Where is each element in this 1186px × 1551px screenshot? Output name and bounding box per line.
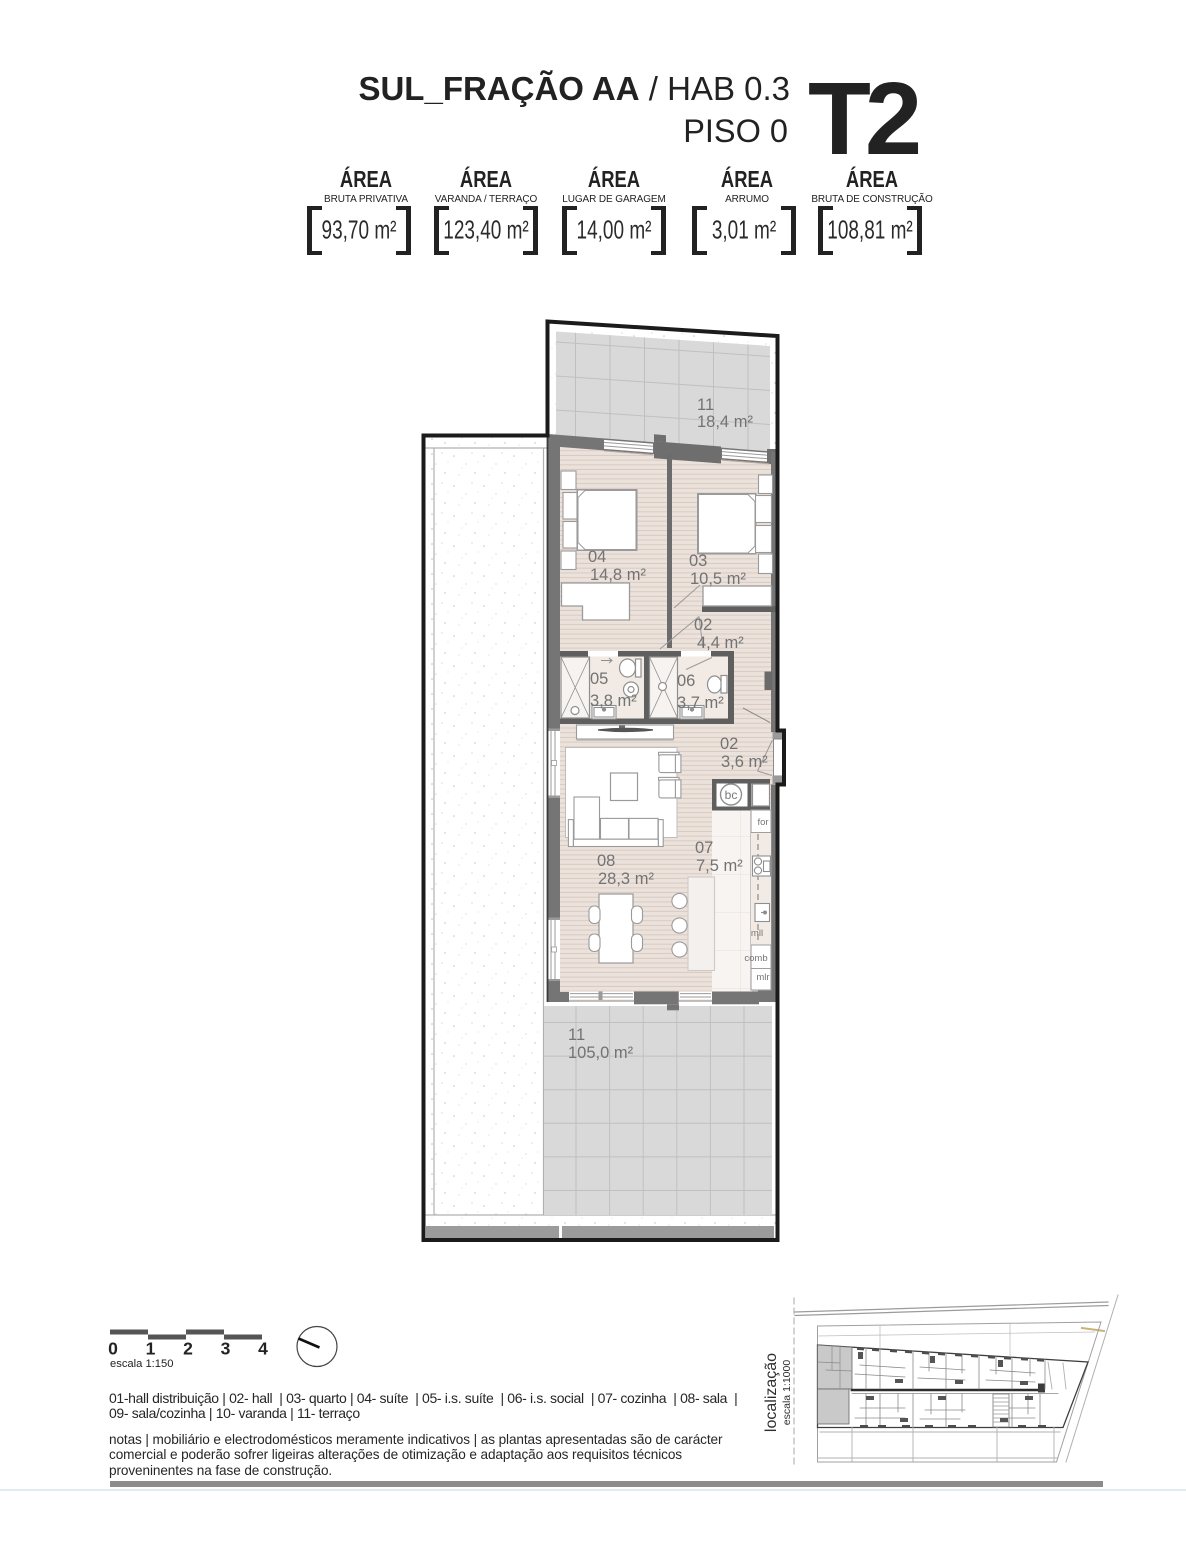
svg-text:bc: bc [725,788,738,802]
svg-text:02: 02 [694,616,712,634]
svg-text:7,5 m²: 7,5 m² [696,857,743,875]
svg-text:11: 11 [568,1026,585,1044]
svg-text:105,0 m²: 105,0 m² [568,1044,634,1062]
svg-text:0: 0 [108,1339,118,1359]
svg-text:02: 02 [720,735,738,753]
svg-text:14,8 m²: 14,8 m² [590,566,646,584]
svg-text:escala 1:150: escala 1:150 [110,1358,173,1370]
svg-text:3: 3 [221,1339,231,1359]
svg-text:mlr: mlr [756,972,769,983]
svg-text:03: 03 [689,552,707,570]
svg-text:11: 11 [697,396,714,414]
svg-text:3,6 m²: 3,6 m² [721,753,768,771]
svg-text:07: 07 [695,839,713,857]
svg-text:05: 05 [590,670,608,688]
svg-text:10,5 m²: 10,5 m² [690,570,746,588]
svg-text:for: for [757,817,768,828]
svg-text:28,3 m²: 28,3 m² [598,870,654,888]
svg-text:08: 08 [597,852,615,870]
svg-text:04: 04 [588,548,606,566]
svg-text:06: 06 [677,672,695,690]
svg-text:mll: mll [751,928,763,939]
svg-text:1: 1 [146,1339,156,1359]
svg-text:2: 2 [183,1339,193,1359]
svg-text:3,8 m²: 3,8 m² [590,692,637,710]
svg-text:18,4 m²: 18,4 m² [697,413,753,431]
svg-text:4: 4 [258,1339,268,1359]
svg-text:4,4 m²: 4,4 m² [697,634,744,652]
svg-text:comb: comb [744,953,767,964]
svg-text:3,7 m²: 3,7 m² [677,694,724,712]
